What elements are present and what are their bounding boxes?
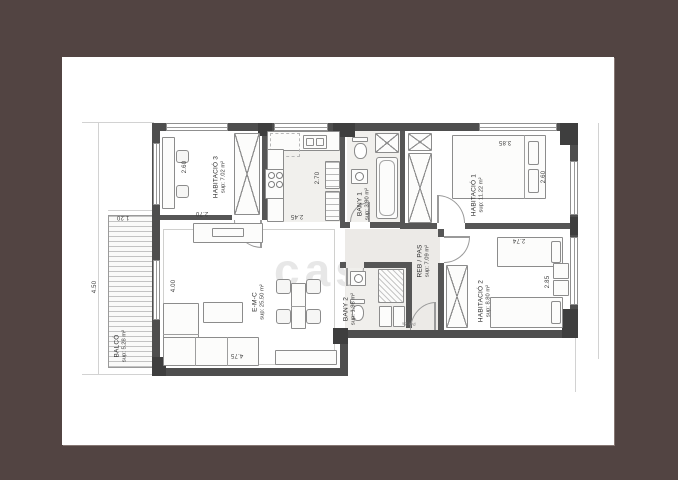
toilet-tank (352, 137, 368, 142)
room-label-rebpas: REB / PAS sup: 7.09 m² (417, 244, 432, 277)
wall (340, 222, 350, 228)
dim-kitchen-width: 2.45 (291, 213, 303, 219)
sink-bowl (316, 138, 324, 146)
burner-icon (268, 181, 275, 188)
room-label-emc: E-M-C sup: 25.50 m² (252, 284, 267, 319)
burner-icon (268, 172, 275, 179)
room-name: REB / PAS (417, 244, 425, 277)
balcony-sliding-door (153, 260, 160, 320)
door-leaf (437, 195, 439, 223)
chair-icon (276, 279, 291, 294)
window (274, 123, 328, 131)
pillow-icon (551, 301, 561, 324)
burner-icon (276, 172, 283, 179)
dim-hab2-width: 2.74 (513, 237, 525, 243)
extension-line (575, 338, 576, 392)
room-name: BALCÓ (114, 330, 122, 362)
room-area: sup: 8.80 m² (485, 280, 492, 322)
room-label-habitacio2: HABITACIÓ 2 sup: 8.80 m² (478, 280, 493, 322)
dim-emc-width: 4.75 (231, 352, 243, 358)
room-name: BANY 2 (343, 293, 351, 325)
dimension-line (108, 210, 153, 211)
bathtub-inner (379, 160, 395, 216)
wardrobe-icon (234, 133, 260, 215)
dim-hab3-width: 2.60 (182, 161, 188, 173)
room-name: BANY 1 (357, 188, 365, 220)
room-name: HABITACIÓ 1 (471, 174, 479, 216)
dim-hab1-width: 3.85 (499, 139, 511, 145)
extension-line (82, 122, 154, 123)
sofa-cushion-line (195, 337, 196, 366)
wall (340, 131, 345, 222)
room-area: sup: 1.98 m² (350, 293, 357, 325)
wall (438, 263, 444, 330)
room-area: sup: 11.22 m² (478, 174, 485, 216)
pillow-icon (551, 241, 561, 263)
shower-icon (378, 269, 404, 303)
coffee-table-icon (203, 302, 243, 323)
tv-icon (212, 228, 244, 237)
washer-icon (379, 306, 392, 327)
pillow-icon (528, 169, 539, 193)
room-label-bany1: BANY 1 sup: 3.90 m² (357, 188, 372, 220)
screenshot-root: { "watermark_text": "casa", "rooms": { "… (0, 0, 678, 480)
door-arc-habitacio2 (444, 237, 470, 263)
room-area: sup: 7.09 m² (424, 244, 431, 277)
nightstand-icon (553, 263, 569, 279)
pillar (333, 328, 348, 344)
room-name: E-M-C (252, 284, 260, 319)
dim-emc-depth: 4.00 (171, 280, 177, 292)
room-name: HABITACIÓ 2 (478, 280, 486, 322)
dim-balco-depth: 4.50 (92, 281, 98, 293)
dim-hab3-depth: 2.70 (196, 210, 208, 216)
wall (465, 223, 578, 229)
nightstand-icon (553, 280, 569, 296)
sofa-icon (163, 337, 259, 366)
room-area: sup: 7.02 m² (220, 156, 227, 198)
chair-icon (276, 309, 291, 324)
fridge-icon (325, 161, 340, 189)
entry-door-note: Por 2a (402, 322, 415, 327)
room-label-habitacio1: HABITACIÓ 1 sup: 11.22 m² (471, 174, 486, 216)
door-leaf (444, 236, 470, 238)
shaft-icon (408, 133, 432, 151)
tall-cabinet-icon (325, 191, 340, 221)
chair-icon (176, 185, 189, 198)
chair-icon (306, 279, 321, 294)
extension-line (82, 374, 154, 375)
room-area: sup: 3.90 m² (364, 188, 371, 220)
extension-line (98, 123, 99, 375)
dim-kitchen-depth: 2.70 (315, 172, 321, 184)
washbasin-bowl (354, 274, 363, 283)
burner-icon (276, 181, 283, 188)
chair-icon (306, 309, 321, 324)
sink-bowl (306, 138, 314, 146)
room-label-balco: BALCÓ sup: 5.28 m² (114, 330, 129, 362)
dim-balco-width: 1.20 (117, 214, 129, 220)
room-name: HABITACIÓ 3 (213, 156, 221, 198)
wall (400, 131, 405, 223)
wardrobe-icon (408, 153, 432, 223)
room-label-bany2: BANY 2 sup: 1.98 m² (343, 293, 358, 325)
dim-hab1-depth: 2.60 (541, 171, 547, 183)
window (570, 237, 578, 305)
wall (400, 223, 437, 229)
dim-hab2-depth: 2.85 (545, 276, 551, 288)
pillar (560, 123, 578, 145)
shaft-icon (375, 133, 399, 153)
pillow-icon (528, 141, 539, 165)
sofa-cushion-line (163, 334, 199, 335)
door-leaf (434, 302, 436, 330)
sideboard-icon (275, 350, 337, 365)
window (479, 123, 557, 131)
pillar (562, 309, 578, 338)
toilet-icon (354, 143, 367, 159)
plan-sheet: casa (62, 57, 614, 445)
window (166, 123, 228, 131)
extension-line (598, 123, 599, 359)
wall (340, 330, 578, 338)
wall (364, 262, 412, 268)
sofa-cushion-line (227, 337, 228, 366)
bed-line (524, 135, 525, 199)
pillar (570, 217, 578, 235)
desk-icon (162, 137, 175, 209)
wall (152, 368, 348, 376)
door-arc-habitacio1 (437, 195, 465, 223)
room-area: sup: 25.50 m² (259, 284, 266, 319)
room-label-habitacio3: HABITACIÓ 3 sup: 7.02 m² (213, 156, 228, 198)
wall (370, 222, 400, 228)
table-line (291, 306, 306, 307)
door-leaf (346, 268, 348, 286)
window (570, 161, 578, 215)
room-area: sup: 5.28 m² (121, 330, 128, 362)
washbasin-bowl (355, 172, 364, 181)
window (153, 143, 160, 205)
wardrobe-icon (446, 265, 468, 328)
